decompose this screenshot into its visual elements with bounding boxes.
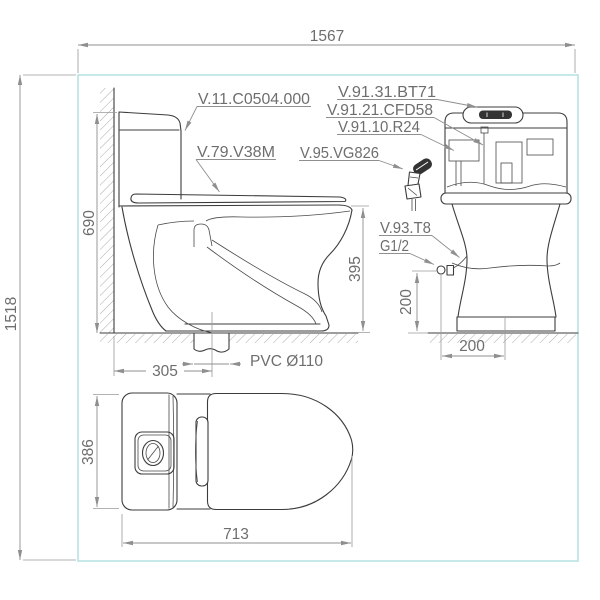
overall-height-dim: 1518: [3, 297, 20, 331]
tank-top: [122, 393, 177, 510]
label-toilet-model: V.11.C0504.000: [185, 91, 311, 131]
overall-width-dim: 1567: [310, 28, 344, 45]
svg-text:690: 690: [81, 210, 98, 236]
wall-hatch: [100, 88, 114, 333]
seat-hinge-top: [196, 417, 208, 486]
svg-text:386: 386: [80, 439, 97, 465]
label-thread: G1/2: [379, 238, 434, 265]
flush-button-front: [463, 107, 523, 123]
dim-inlet-height: 200: [398, 271, 436, 333]
bowl-side-profile: [122, 207, 352, 333]
front-view: 200 200 V.91.31.BT71 V.91.21.CFD58 V.91.…: [299, 84, 578, 360]
side-view: 690 395 305 PVC Ø110 V.11.C0504.000: [81, 88, 370, 380]
dim-bowl-height: 395: [347, 206, 370, 333]
drain-pipe-label: PVC Ø110: [250, 353, 323, 370]
svg-text:G1/2: G1/2: [380, 238, 409, 255]
tank-internals: [447, 127, 566, 190]
svg-text:200: 200: [398, 289, 415, 315]
top-view: 386 713: [80, 393, 353, 547]
floor-hatch-front: [430, 334, 576, 343]
svg-text:V.91.10.R24: V.91.10.R24: [338, 119, 420, 136]
tank-side-profile: [119, 112, 181, 207]
dim-drain-pipe: PVC Ø110: [182, 353, 323, 370]
svg-text:V.11.C0504.000: V.11.C0504.000: [198, 91, 310, 108]
svg-text:395: 395: [347, 256, 364, 282]
svg-text:V.91.21.CFD58: V.91.21.CFD58: [327, 102, 433, 119]
technical-drawing-canvas: 1567 1518: [0, 0, 600, 600]
label-seat: V.79.V38M: [196, 144, 276, 192]
bidet-sprayer: [405, 156, 434, 211]
svg-text:305: 305: [152, 363, 178, 380]
seat-lid-side: [119, 194, 352, 210]
svg-text:713: 713: [223, 526, 249, 543]
svg-text:V.79.V38M: V.79.V38M: [197, 144, 275, 161]
floor-hatch-right: [229, 334, 358, 343]
svg-text:V.91.31.BT71: V.91.31.BT71: [338, 84, 436, 101]
svg-text:V.93.T8: V.93.T8: [380, 220, 431, 237]
seat-top: [196, 394, 353, 510]
tank-front: [441, 113, 571, 204]
svg-text:200: 200: [459, 338, 485, 355]
svg-text:V.95.VG826: V.95.VG826: [300, 145, 379, 162]
bowl-front: [452, 204, 560, 331]
drain-pipe: [194, 333, 229, 352]
dim-top-width: 386: [80, 395, 119, 509]
label-sprayer: V.95.VG826: [299, 145, 403, 169]
